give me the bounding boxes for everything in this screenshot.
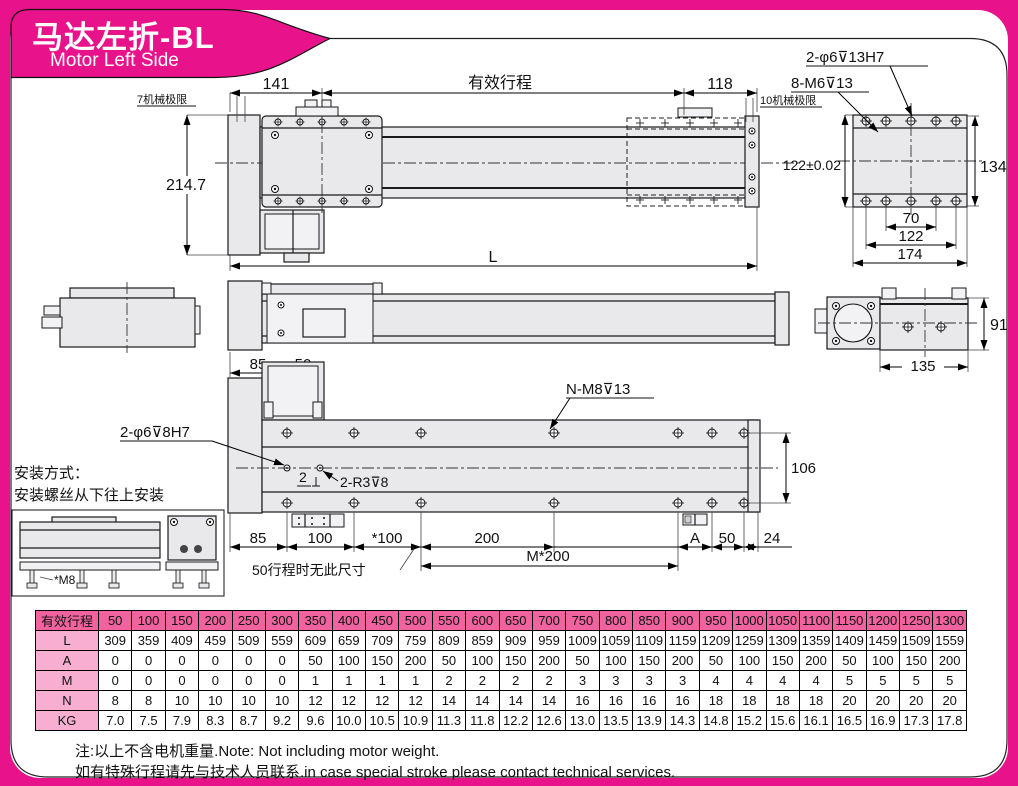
table-cell: 1109 (633, 631, 666, 651)
table-cell: 3 (666, 671, 699, 691)
table-cell: 10 (199, 691, 232, 711)
table-cell: 5 (933, 671, 967, 691)
dim-200: 200 (474, 530, 499, 547)
table-cell: 500 (399, 611, 432, 631)
dim-24: 24 (764, 530, 781, 547)
table-cell: 309 (99, 631, 132, 651)
table-cell: 8.3 (199, 711, 232, 731)
table-cell: 12.6 (532, 711, 565, 731)
table-cell: 759 (399, 631, 432, 651)
table-cell: 100 (466, 651, 499, 671)
table-cell: 1009 (566, 631, 599, 651)
note-line-1: 注:以上不含电机重量.Note: Not including motor wei… (75, 740, 439, 761)
dim-91: 91 (990, 317, 1008, 334)
table-cell: 450 (366, 611, 399, 631)
table-cell: 700 (532, 611, 565, 631)
table-cell: 150 (766, 651, 799, 671)
table-cell: 250 (232, 611, 265, 631)
table-cell: 200 (666, 651, 699, 671)
table-cell: 359 (132, 631, 165, 651)
label-r3: 2-R3⊽8 (340, 474, 389, 490)
table-cell: 0 (165, 651, 198, 671)
table-cell: 14 (499, 691, 532, 711)
table-cell: 150 (165, 611, 198, 631)
table-cell: 650 (499, 611, 532, 631)
table-cell: 550 (432, 611, 465, 631)
table-cell: 7.9 (165, 711, 198, 731)
dim-50: 50 (719, 530, 736, 547)
dim-L: L (489, 249, 498, 266)
table-cell: 809 (432, 631, 465, 651)
row-label: KG (36, 711, 99, 731)
spec-table-wrap: 有效行程501001502002503003504004505005506006… (35, 610, 967, 731)
table-cell: 859 (466, 631, 499, 651)
table-cell: 1050 (766, 611, 799, 631)
table-cell: 509 (232, 631, 265, 651)
table-cell: 10.0 (332, 711, 365, 731)
table-cell: 11.3 (432, 711, 465, 731)
table-cell: 709 (366, 631, 399, 651)
table-cell: 0 (265, 671, 298, 691)
table-cell: 400 (332, 611, 365, 631)
table-cell: 20 (833, 691, 866, 711)
table-cell: 50 (299, 651, 332, 671)
row-label: L (36, 631, 99, 651)
table-cell: 909 (499, 631, 532, 651)
table-cell: 16 (599, 691, 632, 711)
mounting-title: 安装方式： (14, 465, 89, 482)
effective-stroke-label: 有效行程 (468, 74, 532, 92)
table-cell: 13.9 (633, 711, 666, 731)
table-cell: 1250 (900, 611, 933, 631)
table-cell: 200 (799, 651, 832, 671)
table-row: 有效行程501001502002503003504004505005506006… (36, 611, 967, 631)
table-cell: 18 (733, 691, 766, 711)
dim-2: 2 (299, 469, 307, 485)
table-cell: 1259 (733, 631, 766, 651)
table-cell: 1509 (900, 631, 933, 651)
dim-122: 122 (898, 228, 923, 245)
label-n-m8: N-M8⊽13 (566, 381, 630, 398)
table-cell: 20 (866, 691, 899, 711)
table-cell: 14 (432, 691, 465, 711)
table-cell: 409 (165, 631, 198, 651)
table-cell: 150 (366, 651, 399, 671)
table-cell: 800 (599, 611, 632, 631)
dim-118: 118 (707, 76, 733, 93)
dim-A: A (690, 530, 700, 547)
label-m8: *M8 (54, 573, 76, 587)
table-cell: 10 (165, 691, 198, 711)
table-row: KG7.07.57.98.38.79.29.610.010.510.911.31… (36, 711, 967, 731)
table-cell: 1000 (733, 611, 766, 631)
table-cell: 600 (466, 611, 499, 631)
table-cell: 1150 (833, 611, 866, 631)
table-cell: 1409 (833, 631, 866, 651)
table-cell: 1100 (799, 611, 832, 631)
table-cell: 18 (799, 691, 832, 711)
table-cell: 12 (366, 691, 399, 711)
label-dowel-8h7: 2-φ6⊽8H7 (120, 424, 190, 441)
table-cell: 16.1 (799, 711, 832, 731)
table-cell: 20 (933, 691, 967, 711)
table-cell: 8 (132, 691, 165, 711)
table-cell: 12 (299, 691, 332, 711)
table-cell: 50 (99, 611, 132, 631)
table-cell: 150 (633, 651, 666, 671)
table-cell: 200 (199, 611, 232, 631)
row-label: 有效行程 (36, 611, 99, 631)
table-cell: 0 (199, 651, 232, 671)
table-cell: 1209 (699, 631, 732, 651)
table-cell: 100 (733, 651, 766, 671)
table-cell: 0 (99, 651, 132, 671)
table-cell: 1059 (599, 631, 632, 651)
table-cell: 1 (399, 671, 432, 691)
table-cell: 14 (532, 691, 565, 711)
sensor-bracket (292, 514, 344, 527)
table-cell: 1459 (866, 631, 899, 651)
table-cell: 7.0 (99, 711, 132, 731)
table-cell: 3 (599, 671, 632, 691)
table-cell: 0 (232, 651, 265, 671)
dim-174: 174 (897, 246, 922, 263)
table-cell: 5 (866, 671, 899, 691)
table-cell: 16 (566, 691, 599, 711)
table-cell: 12 (332, 691, 365, 711)
table-cell: 8 (99, 691, 132, 711)
table-cell: 200 (399, 651, 432, 671)
dim-100: 100 (307, 530, 332, 547)
table-cell: 8.7 (232, 711, 265, 731)
table-cell: 0 (165, 671, 198, 691)
table-cell: 850 (633, 611, 666, 631)
table-cell: 5 (833, 671, 866, 691)
table-cell: 1159 (666, 631, 699, 651)
table-cell: 1 (332, 671, 365, 691)
mech-limit-left-label: 7机械极限 (137, 92, 187, 106)
table-cell: 0 (99, 671, 132, 691)
mounting-subtitle: 安装螺丝从下往上安装 (14, 487, 164, 504)
note-line-2: 如有特殊行程请先与技术人员联系.in case special stroke p… (75, 761, 675, 782)
table-cell: 4 (733, 671, 766, 691)
table-cell: 9.2 (265, 711, 298, 731)
table-cell: 4 (799, 671, 832, 691)
table-cell: 3 (566, 671, 599, 691)
table-cell: 1 (299, 671, 332, 691)
table-cell: 16.5 (833, 711, 866, 731)
table-cell: 18 (766, 691, 799, 711)
table-cell: 0 (199, 671, 232, 691)
table-cell: 200 (532, 651, 565, 671)
table-cell: 1359 (799, 631, 832, 651)
table-cell: 100 (866, 651, 899, 671)
table-row: N881010101012121212141414141616161618181… (36, 691, 967, 711)
table-cell: 4 (766, 671, 799, 691)
table-cell: 959 (532, 631, 565, 651)
table-cell: 0 (265, 651, 298, 671)
table-cell: 900 (666, 611, 699, 631)
table-cell: 2 (466, 671, 499, 691)
table-cell: 2 (499, 671, 532, 691)
dim-214-7: 214.7 (166, 177, 206, 194)
table-row: A000000501001502005010015020050100150200… (36, 651, 967, 671)
table-cell: 2 (432, 671, 465, 691)
table-cell: 459 (199, 631, 232, 651)
table-cell: 14.3 (666, 711, 699, 731)
table-cell: 2 (532, 671, 565, 691)
table-row: L309359409459509559609659709759809859909… (36, 631, 967, 651)
table-cell: 350 (299, 611, 332, 631)
sensor-bracket (683, 514, 707, 525)
table-cell: 50 (566, 651, 599, 671)
datasheet-page: 141 有效行程 118 7机械极限 10机械极限 214.7 L 2-φ6⊽1… (0, 0, 1018, 786)
table-cell: 10.5 (366, 711, 399, 731)
table-cell: 7.5 (132, 711, 165, 731)
table-cell: 14.8 (699, 711, 732, 731)
row-label: N (36, 691, 99, 711)
table-cell: 14 (466, 691, 499, 711)
table-cell: 1559 (933, 631, 967, 651)
table-cell: 1200 (866, 611, 899, 631)
mech-limit-right-label: 10机械极限 (760, 93, 816, 107)
dim-85: 85 (250, 530, 267, 547)
table-row: M00000011112222333344445555 (36, 671, 967, 691)
dim-141: 141 (263, 76, 290, 93)
table-cell: 15.6 (766, 711, 799, 731)
dim-135: 135 (910, 358, 935, 375)
dim-106: 106 (791, 460, 816, 477)
table-cell: 16 (633, 691, 666, 711)
dim-70: 70 (903, 210, 920, 227)
table-cell: 10 (232, 691, 265, 711)
table-cell: 1309 (766, 631, 799, 651)
table-cell: 13.5 (599, 711, 632, 731)
table-cell: 12 (399, 691, 432, 711)
table-cell: 0 (132, 651, 165, 671)
table-cell: 9.6 (299, 711, 332, 731)
table-cell: 4 (699, 671, 732, 691)
table-cell: 17.8 (933, 711, 967, 731)
table-cell: 5 (900, 671, 933, 691)
table-cell: 659 (332, 631, 365, 651)
table-cell: 13.0 (566, 711, 599, 731)
table-cell: 300 (265, 611, 298, 631)
table-cell: 100 (332, 651, 365, 671)
table-cell: 50 (699, 651, 732, 671)
table-cell: 18 (699, 691, 732, 711)
table-cell: 200 (933, 651, 967, 671)
dim-134: 134 (980, 159, 1007, 176)
label-dowel-13h7: 2-φ6⊽13H7 (806, 49, 884, 66)
table-cell: 17.3 (900, 711, 933, 731)
table-cell: 1 (366, 671, 399, 691)
table-cell: 750 (566, 611, 599, 631)
table-cell: 100 (599, 651, 632, 671)
row-label: A (36, 651, 99, 671)
row-label: M (36, 671, 99, 691)
table-cell: 100 (132, 611, 165, 631)
table-cell: 0 (132, 671, 165, 691)
table-cell: 50 (432, 651, 465, 671)
table-cell: 10.9 (399, 711, 432, 731)
page-subtitle: Motor Left Side (50, 50, 179, 72)
label-tap-8m6: 8-M6⊽13 (791, 75, 853, 92)
dim-122-tolerance: 122±0.02 (783, 157, 842, 173)
spec-table: 有效行程501001502002503003504004505005506006… (35, 610, 967, 731)
table-cell: 16.9 (866, 711, 899, 731)
table-cell: 11.8 (466, 711, 499, 731)
table-cell: 10 (265, 691, 298, 711)
table-cell: 50 (833, 651, 866, 671)
table-cell: 12.2 (499, 711, 532, 731)
table-cell: 1300 (933, 611, 967, 631)
table-cell: 20 (900, 691, 933, 711)
table-cell: 0 (232, 671, 265, 691)
table-cell: 150 (499, 651, 532, 671)
table-cell: 150 (900, 651, 933, 671)
table-cell: 559 (265, 631, 298, 651)
table-cell: 609 (299, 631, 332, 651)
table-cell: 15.2 (733, 711, 766, 731)
table-cell: 950 (699, 611, 732, 631)
note-50-stroke: 50行程时无此尺寸 (252, 562, 366, 578)
dim-100-star: *100 (372, 530, 403, 547)
dim-m200: M*200 (526, 548, 569, 565)
table-cell: 3 (633, 671, 666, 691)
table-cell: 16 (666, 691, 699, 711)
